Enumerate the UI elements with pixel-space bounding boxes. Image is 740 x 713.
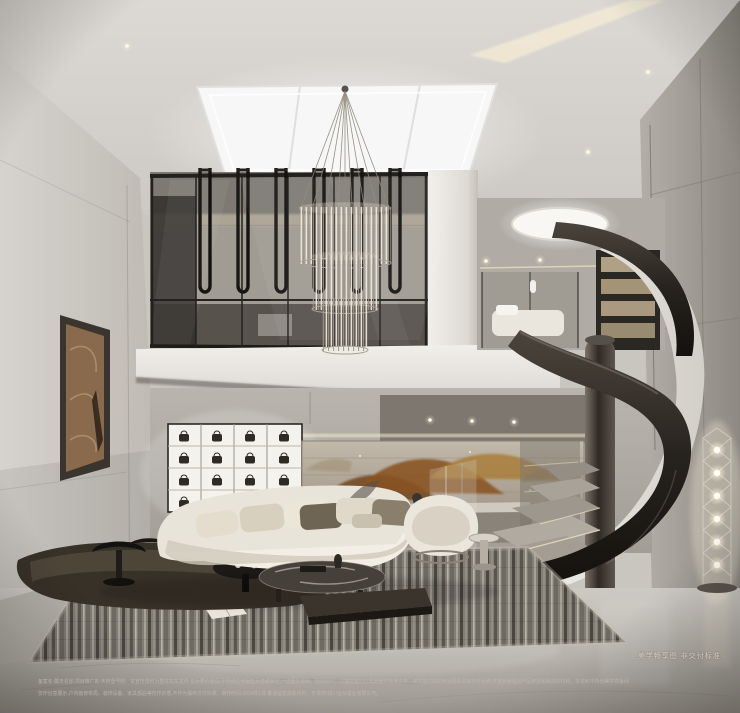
disclaimer-line-2: 仅作创意展示,户内装修布局、装饰设备、家具部品等仅作示意,不作为最终交付标准。制…: [38, 689, 687, 701]
disclaimer-text: 备案名:麓天名邸,项目推广名:天府壹号院。本宣传资料为整体形象宣传,仅为要约邀请…: [38, 677, 728, 700]
render-caption: · 美学畅享图 非交付标准 ·: [632, 651, 728, 661]
interior-rendering: · 美学畅享图 非交付标准 · 备案名:麓天名邸,项目推广名:天府壹号院。本宣传…: [0, 0, 740, 713]
vignette: [0, 0, 740, 713]
living-room-scene: [0, 0, 740, 713]
disclaimer-line-1: 备案名:麓天名邸,项目推广名:天府壹号院。本宣传资料为整体形象宣传,仅为要约邀请…: [38, 677, 687, 689]
